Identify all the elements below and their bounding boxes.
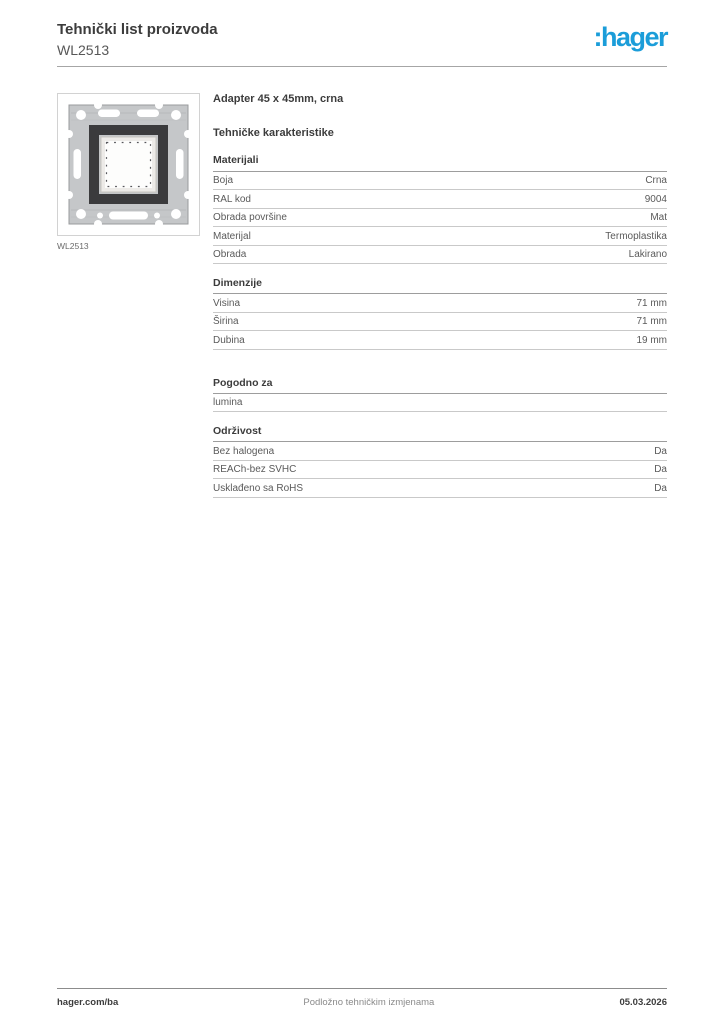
adapter-drawing xyxy=(58,94,199,235)
table-row: Visina 71 mm xyxy=(213,294,667,313)
footer-date: 05.03.2026 xyxy=(619,997,667,1008)
section-rows: Bez halogena Da REACh-bez SVHC Da Usklađ… xyxy=(213,442,667,498)
spec-sections: Materijali Boja Crna RAL kod 9004 Obrada… xyxy=(213,154,667,498)
row-label: Materijal xyxy=(213,230,251,243)
row-label: Širina xyxy=(213,315,239,328)
page-title: Tehnički list proizvoda xyxy=(57,21,667,40)
footer-website: hager.com/ba xyxy=(57,997,118,1008)
row-value: Lakirano xyxy=(629,248,667,261)
section-title: Održivost xyxy=(213,425,667,442)
product-title: Adapter 45 x 45mm, crna xyxy=(213,93,667,106)
content: WL2513 Adapter 45 x 45mm, crna Tehničke … xyxy=(57,93,667,498)
row-value: 9004 xyxy=(645,193,667,206)
section-rows: lumina xyxy=(213,394,667,413)
row-label: Dubina xyxy=(213,334,245,347)
row-value: Termoplastika xyxy=(605,230,667,243)
table-row: Dubina 19 mm xyxy=(213,331,667,350)
table-row: lumina xyxy=(213,394,667,413)
datasheet-page: Tehnički list proizvoda WL2513 :hager xyxy=(0,0,724,1024)
row-value: 19 mm xyxy=(636,334,667,347)
spec-section: Materijali Boja Crna RAL kod 9004 Obrada… xyxy=(213,154,667,264)
row-value: Mat xyxy=(650,211,667,224)
footer: hager.com/ba Podložno tehničkim izmjenam… xyxy=(57,988,667,1008)
table-row: Bez halogena Da xyxy=(213,442,667,461)
table-row: RAL kod 9004 xyxy=(213,190,667,209)
row-value: Da xyxy=(654,445,667,458)
row-value: 71 mm xyxy=(636,297,667,310)
header: Tehnički list proizvoda WL2513 :hager xyxy=(57,21,667,59)
row-label: lumina xyxy=(213,396,242,409)
footer-disclaimer: Podložno tehničkim izmjenama xyxy=(303,997,434,1008)
product-image xyxy=(57,93,200,236)
table-row: Obrada površine Mat xyxy=(213,209,667,228)
hager-logo: :hager xyxy=(593,24,667,51)
product-code: WL2513 xyxy=(57,42,667,59)
spec-section: Održivost Bez halogena Da REACh-bez SVHC… xyxy=(213,425,667,498)
characteristics-heading: Tehničke karakteristike xyxy=(213,127,667,140)
row-label: Usklađeno sa RoHS xyxy=(213,482,303,495)
header-divider xyxy=(57,66,667,67)
table-row: Usklađeno sa RoHS Da xyxy=(213,479,667,498)
row-label: REACh-bez SVHC xyxy=(213,463,296,476)
image-caption: WL2513 xyxy=(57,241,200,251)
row-label: Bez halogena xyxy=(213,445,274,458)
spec-section: Dimenzije Visina 71 mm Širina 71 mm Dubi… xyxy=(213,277,667,350)
row-value: Crna xyxy=(645,174,667,187)
spec-section: Pogodno za lumina xyxy=(213,377,667,413)
row-value: Da xyxy=(654,482,667,495)
section-title: Dimenzije xyxy=(213,277,667,294)
row-label: Visina xyxy=(213,297,240,310)
table-row: Obrada Lakirano xyxy=(213,246,667,265)
product-image-column: WL2513 xyxy=(57,93,200,251)
row-label: Obrada površine xyxy=(213,211,287,224)
section-title: Pogodno za xyxy=(213,377,667,394)
table-row: Materijal Termoplastika xyxy=(213,227,667,246)
row-value: 71 mm xyxy=(636,315,667,328)
row-label: Obrada xyxy=(213,248,246,261)
section-rows: Boja Crna RAL kod 9004 Obrada površine M… xyxy=(213,172,667,265)
table-row: Širina 71 mm xyxy=(213,313,667,332)
spec-column: Adapter 45 x 45mm, crna Tehničke karakte… xyxy=(213,93,667,498)
row-label: Boja xyxy=(213,174,233,187)
section-rows: Visina 71 mm Širina 71 mm Dubina 19 mm xyxy=(213,294,667,350)
section-title: Materijali xyxy=(213,154,667,171)
table-row: Boja Crna xyxy=(213,172,667,191)
row-value: Da xyxy=(654,463,667,476)
table-row: REACh-bez SVHC Da xyxy=(213,461,667,480)
row-label: RAL kod xyxy=(213,193,251,206)
